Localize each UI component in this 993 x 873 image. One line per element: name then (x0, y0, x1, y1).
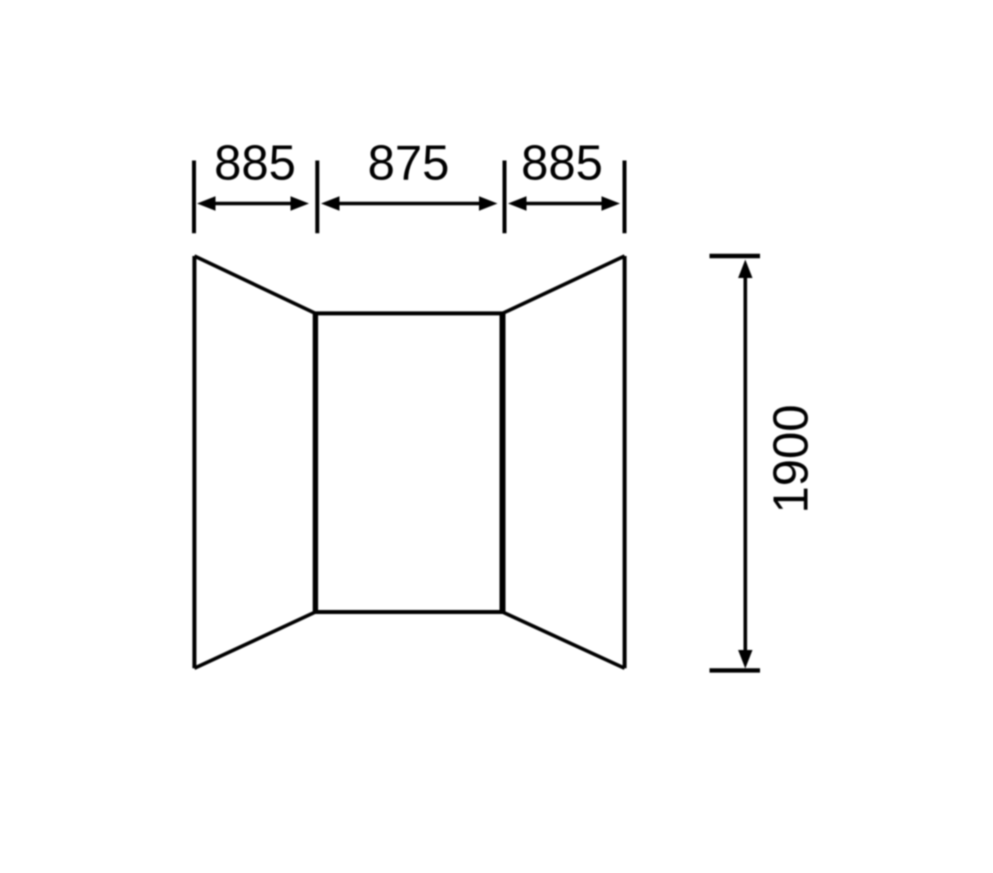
svg-text:875: 875 (368, 136, 450, 190)
svg-text:885: 885 (521, 136, 603, 190)
svg-text:885: 885 (214, 136, 296, 190)
svg-text:1900: 1900 (765, 404, 819, 513)
